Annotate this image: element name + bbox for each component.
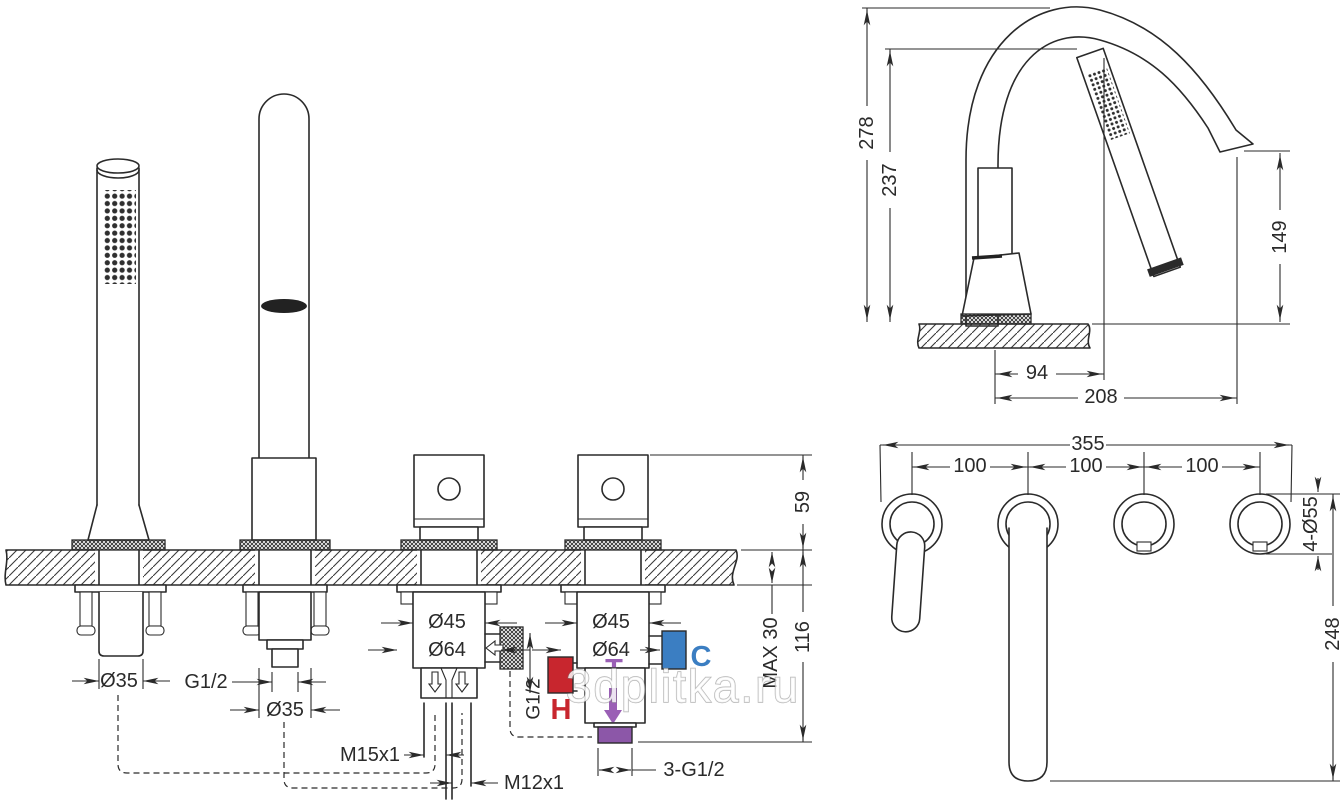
dim-shower-height: 237 xyxy=(879,163,901,196)
front-view: Ø35 G1/2 Ø35 xyxy=(5,94,814,799)
faucet-installation-drawing: Ø35 G1/2 Ø35 xyxy=(0,0,1342,800)
dim-pipe-thread: M12x1 xyxy=(504,772,564,794)
deck-hole xyxy=(417,548,481,587)
top-view: 355 100 100 100 4-Ø55 248 xyxy=(880,433,1342,781)
dim-shower-diameter: Ø35 xyxy=(100,670,138,692)
bolt-foot xyxy=(146,626,164,635)
dim-hole-diameters: 4-Ø55 xyxy=(1300,496,1322,552)
knurled-flange xyxy=(72,540,165,550)
shank-step xyxy=(267,640,303,649)
dim-spacing-3: 100 xyxy=(1185,455,1218,477)
handle-set-screw xyxy=(438,478,460,500)
mount-bolt xyxy=(149,592,161,626)
spout-shank xyxy=(259,592,311,640)
dim-valve-d64: Ø64 xyxy=(428,639,466,661)
dim-spacing-1: 100 xyxy=(953,455,986,477)
mount-bolt xyxy=(246,592,258,626)
mix-outlet-block xyxy=(598,727,632,743)
dim-total-width: 355 xyxy=(1071,433,1104,455)
dim-spout-reach: 208 xyxy=(1084,386,1117,408)
dim-outlet-thread: 3-G1/2 xyxy=(663,759,724,781)
drawing-canvas: Ø35 G1/2 Ø35 xyxy=(0,0,1342,800)
dim-shower-reach: 94 xyxy=(1026,362,1048,384)
bolt-foot xyxy=(77,626,95,635)
dim-spout-diameter: Ø35 xyxy=(266,699,304,721)
deck-hole xyxy=(255,548,315,587)
spout-outlet-slot xyxy=(261,299,307,313)
washer-plate xyxy=(243,585,327,592)
washer-plate xyxy=(397,585,501,592)
dim-spout-thread: G1/2 xyxy=(184,671,227,693)
top-dimensions: 355 100 100 100 4-Ø55 248 xyxy=(880,433,1342,781)
bolt-stub xyxy=(649,592,661,604)
washer-plate xyxy=(75,585,166,592)
washer-plate xyxy=(561,585,665,592)
dim-hose-thread: M15x1 xyxy=(340,744,400,766)
wand-top-projection xyxy=(891,531,926,633)
deck-hole xyxy=(95,548,143,587)
hole-handle-2 xyxy=(1230,494,1290,554)
knurled-base xyxy=(961,314,1031,324)
bolt-stub xyxy=(565,592,577,604)
dim-above-deck: 59 xyxy=(792,491,814,513)
dim-valve-d45: Ø45 xyxy=(592,611,630,633)
handle-notch xyxy=(1253,542,1267,551)
dim-spacing-2: 100 xyxy=(1069,455,1102,477)
mount-bolt xyxy=(314,592,326,626)
dim-total-height: 278 xyxy=(856,116,878,149)
mount-bolt xyxy=(80,592,92,626)
spout-top-projection xyxy=(1009,528,1047,781)
threaded-tail xyxy=(272,649,298,667)
knurled-flange xyxy=(401,540,497,550)
hole-handle-1 xyxy=(1114,494,1174,554)
deck-hole xyxy=(581,548,645,587)
spout-base xyxy=(252,458,316,540)
dim-valve-d45: Ø45 xyxy=(428,611,466,633)
handle-set-screw xyxy=(602,478,624,500)
hand-shower: Ø35 xyxy=(72,159,170,692)
dim-spout-reach-top: 248 xyxy=(1322,617,1342,650)
dim-spout-height: 149 xyxy=(1269,220,1291,253)
knurled-flange xyxy=(240,540,330,550)
bolt-stub xyxy=(401,592,413,604)
deck xyxy=(5,548,737,587)
valve-mixer: Ø45 Ø64 C H T 3-G1/2 xyxy=(532,455,725,781)
handle-notch xyxy=(1137,542,1151,551)
valve-diverter: Ø45 Ø64 G1/2 M15x1 M12x1 xyxy=(340,455,564,799)
spout: G1/2 Ø35 xyxy=(184,94,340,721)
valve-lower xyxy=(421,668,477,698)
hand-shower-wand xyxy=(1073,47,1184,278)
knurled-flange xyxy=(565,540,661,550)
shower-socket-body xyxy=(99,592,143,656)
bolt-foot xyxy=(311,626,329,635)
dim-side-outlet-thread: G1/2 xyxy=(524,678,545,719)
side-view: 278 237 149 94 208 xyxy=(856,7,1291,408)
spray-face-dots xyxy=(103,190,136,284)
bolt-stub xyxy=(485,592,497,604)
watermark: 3dplitka.ru xyxy=(566,660,800,712)
dim-below-deck: 116 xyxy=(792,621,814,653)
shower-holder-bracket xyxy=(978,168,1012,258)
holder-cone xyxy=(962,253,1031,316)
